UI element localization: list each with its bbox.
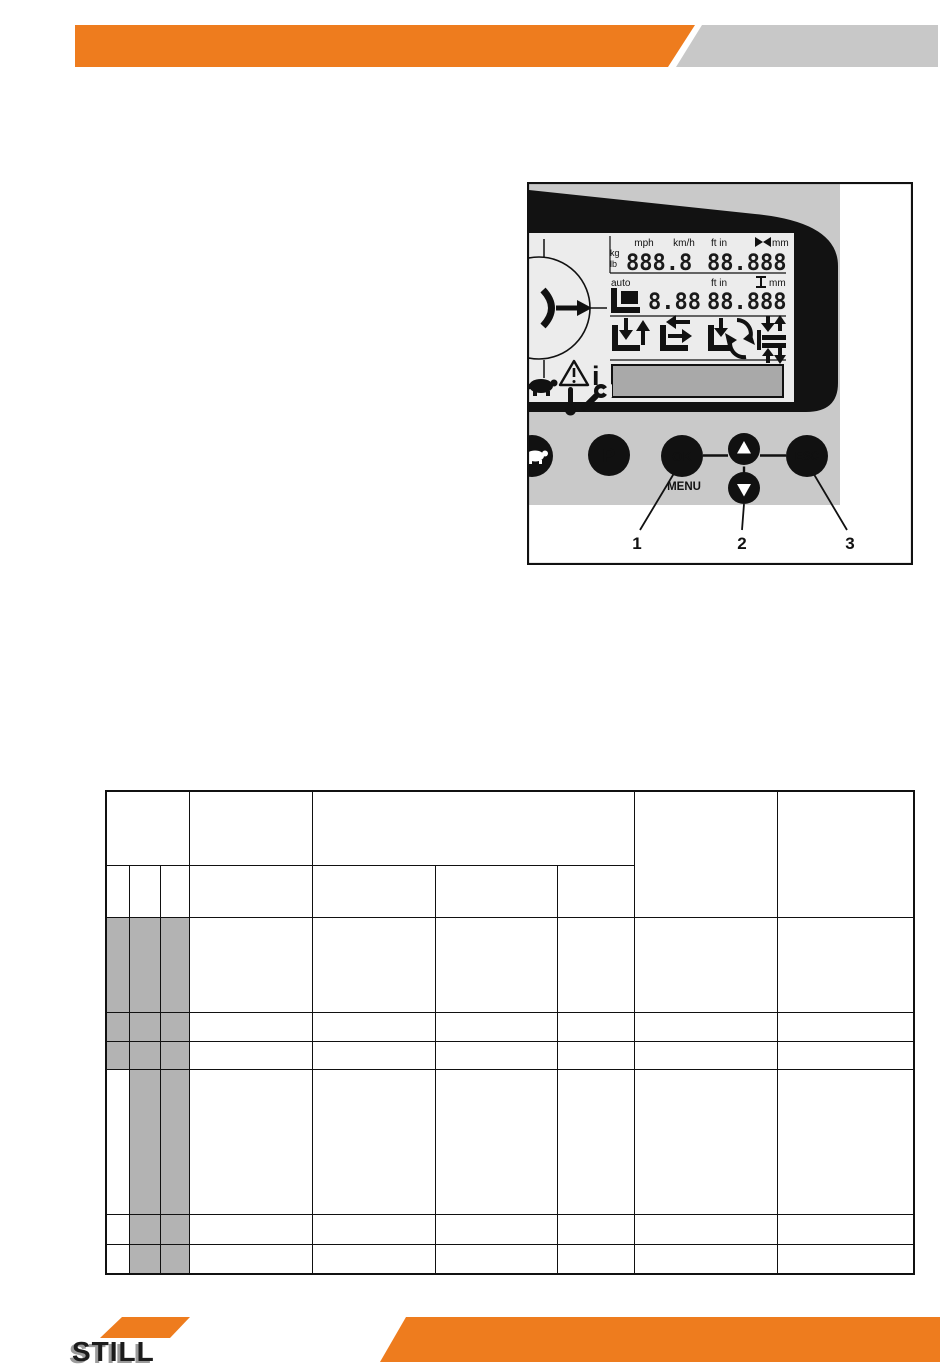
table-cell bbox=[106, 1069, 129, 1214]
header-orange-bar bbox=[75, 25, 695, 67]
table-cell-shaded bbox=[160, 917, 189, 1012]
table-cell bbox=[106, 1244, 129, 1274]
table-cell bbox=[634, 1012, 777, 1041]
distance-value-top: 88.888 bbox=[707, 251, 786, 276]
table-cell-shaded bbox=[160, 1244, 189, 1274]
table-cell-shaded bbox=[106, 1012, 129, 1041]
unit-ftin-top: ft in bbox=[711, 238, 727, 249]
table-cell bbox=[189, 865, 312, 917]
table-cell-shaded bbox=[160, 1012, 189, 1041]
table-cell bbox=[189, 1041, 312, 1069]
ok-menu-button: OK bbox=[661, 435, 703, 477]
table-cell bbox=[557, 865, 634, 917]
table-cell bbox=[160, 865, 189, 917]
unit-mph: mph bbox=[634, 238, 653, 249]
table-cell bbox=[312, 1041, 435, 1069]
table-cell bbox=[312, 1214, 435, 1244]
table-cell bbox=[189, 1012, 312, 1041]
table-cell-shaded bbox=[129, 917, 160, 1012]
text-display-field bbox=[612, 365, 783, 397]
table-cell bbox=[129, 865, 160, 917]
table-row bbox=[106, 1069, 914, 1214]
table-cell bbox=[435, 1214, 557, 1244]
table-row bbox=[106, 1041, 914, 1069]
callout-3: 3 bbox=[845, 534, 854, 553]
table-cell bbox=[312, 1012, 435, 1041]
still-logo-flag-icon bbox=[100, 1317, 190, 1338]
table-row bbox=[106, 1244, 914, 1274]
fork-icon bbox=[611, 288, 640, 313]
table-cell bbox=[189, 1214, 312, 1244]
table-cell bbox=[634, 917, 777, 1012]
arrow-up-button bbox=[728, 433, 760, 465]
esc-button-label: ESC bbox=[795, 451, 819, 463]
table-cell bbox=[634, 791, 777, 917]
unit-ftin-mid: ft in bbox=[711, 278, 727, 289]
table-row bbox=[106, 917, 914, 1012]
table-cell bbox=[312, 791, 634, 865]
table-cell-shaded bbox=[160, 1069, 189, 1214]
park-button-label: P bbox=[603, 446, 616, 467]
table-cell bbox=[435, 917, 557, 1012]
unit-kmh: km/h bbox=[673, 238, 695, 249]
display-unit-figure: mph km/h ft in mm kg lb 888.8 88.888 aut… bbox=[527, 182, 913, 565]
callout-2: 2 bbox=[737, 534, 746, 553]
table-cell bbox=[189, 1069, 312, 1214]
table-cell bbox=[634, 1041, 777, 1069]
table-cell bbox=[557, 917, 634, 1012]
unit-mm-mid: mm bbox=[769, 278, 786, 289]
unit-mm-top: mm bbox=[772, 238, 789, 249]
callout-1: 1 bbox=[632, 534, 641, 553]
table-cell-shaded bbox=[129, 1244, 160, 1274]
table-cell bbox=[189, 791, 312, 865]
table-cell bbox=[106, 791, 189, 865]
mid-value-small: 8.88 bbox=[648, 290, 701, 315]
table-cell bbox=[189, 917, 312, 1012]
header-gray-bar bbox=[676, 25, 938, 67]
table-cell bbox=[634, 1214, 777, 1244]
table-row bbox=[106, 1012, 914, 1041]
table-cell-shaded bbox=[129, 1012, 160, 1041]
table-cell bbox=[435, 1244, 557, 1274]
table-wrap bbox=[105, 790, 915, 1275]
table-cell bbox=[189, 1244, 312, 1274]
unit-lb: lb bbox=[610, 259, 617, 269]
table-cell bbox=[435, 1069, 557, 1214]
table-cell-shaded bbox=[129, 1069, 160, 1214]
table-cell bbox=[777, 1069, 914, 1214]
table-cell bbox=[557, 1244, 634, 1274]
auto-label: auto bbox=[611, 278, 631, 289]
menu-label: MENU bbox=[667, 481, 701, 493]
settings-table bbox=[105, 790, 915, 1275]
table-row bbox=[106, 791, 914, 865]
table-cell bbox=[557, 1069, 634, 1214]
esc-button: ESC bbox=[786, 435, 828, 477]
table-cell-shaded bbox=[160, 1041, 189, 1069]
table-cell bbox=[435, 1012, 557, 1041]
table-cell bbox=[777, 917, 914, 1012]
table-cell bbox=[312, 1069, 435, 1214]
table-row bbox=[106, 1214, 914, 1244]
table-cell bbox=[777, 1214, 914, 1244]
table-cell-shaded bbox=[160, 1214, 189, 1244]
table-cell bbox=[777, 1041, 914, 1069]
table-cell bbox=[777, 791, 914, 917]
still-logo: STILL bbox=[72, 1336, 155, 1368]
table-cell bbox=[777, 1012, 914, 1041]
table-cell-shaded bbox=[106, 1041, 129, 1069]
table-cell bbox=[312, 917, 435, 1012]
park-button: P bbox=[588, 434, 630, 476]
footer-orange-bar bbox=[380, 1317, 940, 1362]
table-cell bbox=[312, 865, 435, 917]
weight-value: 888.8 bbox=[626, 251, 692, 276]
table-cell bbox=[634, 1244, 777, 1274]
table-cell bbox=[435, 865, 557, 917]
table-cell bbox=[435, 1041, 557, 1069]
unit-kg: kg bbox=[610, 248, 620, 258]
table-cell bbox=[312, 1244, 435, 1274]
table-cell bbox=[557, 1041, 634, 1069]
table-cell-shaded bbox=[129, 1041, 160, 1069]
mid-value-large: 88.888 bbox=[707, 290, 786, 315]
ok-button-label: OK bbox=[672, 449, 692, 464]
table-cell bbox=[634, 1069, 777, 1214]
table-cell bbox=[777, 1244, 914, 1274]
table-cell-shaded bbox=[129, 1214, 160, 1244]
table-cell-shaded bbox=[106, 917, 129, 1012]
arrow-down-button bbox=[728, 472, 760, 504]
table-cell bbox=[557, 1214, 634, 1244]
table-cell bbox=[557, 1012, 634, 1041]
table-cell bbox=[106, 1214, 129, 1244]
table-cell bbox=[106, 865, 129, 917]
